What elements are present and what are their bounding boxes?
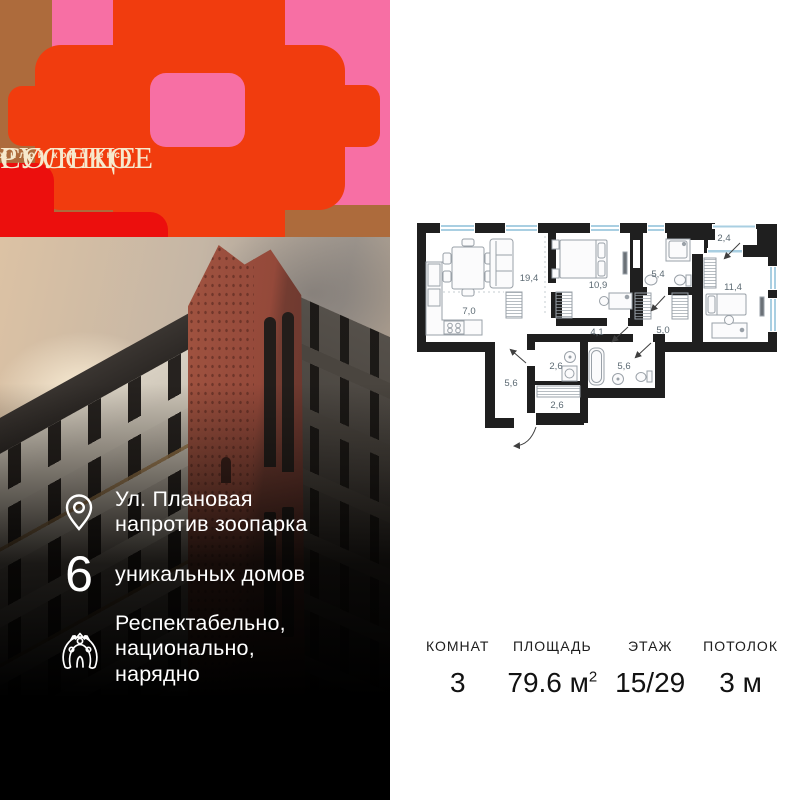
wall-niche (633, 240, 640, 268)
brand-subtitle: жилой комплекс (0, 150, 123, 161)
room-label-wc: 2,6 (549, 361, 562, 372)
feature-line: национально, (115, 636, 286, 661)
six-digit: 6 (56, 549, 102, 599)
spec-label: ПЛОЩАДЬ (507, 638, 597, 654)
spec-ceiling: ПОТОЛОК 3 м (703, 638, 778, 699)
spec-value-sup: 2 (589, 669, 597, 686)
room-label-bedroom-1: 10,9 (589, 280, 608, 291)
spec-value: 15/29 (615, 667, 685, 699)
room-label-bathroom-1: 5,4 (651, 269, 664, 280)
spec-area: ПЛОЩАДЬ 79.6 м2 (507, 638, 597, 699)
apartment-panel: 19,4 7,0 10,9 5,4 2,4 11,4 4,1 5,0 2,6 5… (390, 0, 800, 800)
spec-value: 79.6 м2 (507, 667, 597, 699)
spec-label: ЭТАЖ (615, 638, 685, 654)
feature-line: уникальных домов (115, 562, 305, 587)
floor-plan: 19,4 7,0 10,9 5,4 2,4 11,4 4,1 5,0 2,6 5… (400, 200, 800, 465)
kokoshnik-icon (56, 626, 102, 672)
spec-value-text: 79.6 м (507, 667, 589, 698)
feature-line: Ул. Плановая (115, 487, 308, 512)
feature-style: Респектабельно, национально, нарядно (56, 611, 384, 686)
room-label-living: 19,4 (520, 273, 539, 284)
specs-row: КОМНАТ 3 ПЛОЩАДЬ 79.6 м2 ЭТАЖ 15/29 ПОТО… (426, 638, 778, 699)
ornament-pattern: РУССКОЕ СОЛНЦЕ жилой комплекс (0, 0, 390, 237)
spec-value-text: 3 (450, 667, 466, 698)
room-label-balcony: 2,4 (717, 233, 730, 244)
listing-card[interactable]: РУССКОЕ СОЛНЦЕ жилой комплекс (0, 0, 800, 800)
room-label-corridor: 5,0 (656, 325, 669, 336)
spec-floor: ЭТАЖ 15/29 (615, 638, 685, 699)
room-label-hall: 4,1 (590, 327, 603, 338)
spec-value-text: 15/29 (615, 667, 685, 698)
building-photo: Ул. Плановая напротив зоопарка 6 уникаль… (0, 237, 390, 800)
room-label-bedroom-2: 11,4 (724, 282, 742, 293)
spec-rooms: КОМНАТ 3 (426, 638, 489, 699)
room-label-entry-hall: 5,6 (504, 378, 517, 389)
feature-line: напротив зоопарка (115, 512, 308, 537)
brand-panel: РУССКОЕ СОЛНЦЕ жилой комплекс (0, 0, 390, 800)
spec-label: ПОТОЛОК (703, 638, 778, 654)
feature-list: Ул. Плановая напротив зоопарка 6 уникаль… (56, 487, 384, 699)
spec-value: 3 (426, 667, 489, 699)
spec-value-text: 3 м (719, 667, 762, 698)
feature-text: Респектабельно, национально, нарядно (115, 611, 286, 686)
feature-line: Респектабельно, (115, 611, 286, 636)
feature-line: нарядно (115, 662, 286, 687)
feature-text: уникальных домов (115, 562, 305, 587)
spec-value: 3 м (703, 667, 778, 699)
room-label-wardrobe: 2,6 (550, 400, 563, 411)
feature-houses: 6 уникальных домов (56, 549, 384, 599)
ornament-shape (0, 212, 168, 237)
room-label-bathroom-2: 5,6 (617, 361, 630, 372)
location-pin-icon (56, 490, 102, 534)
feature-location: Ул. Плановая напротив зоопарка (56, 487, 384, 537)
ornament-shape (150, 73, 245, 147)
feature-text: Ул. Плановая напротив зоопарка (115, 487, 308, 537)
spec-label: КОМНАТ (426, 638, 489, 654)
room-label-kitchen: 7,0 (462, 306, 475, 317)
